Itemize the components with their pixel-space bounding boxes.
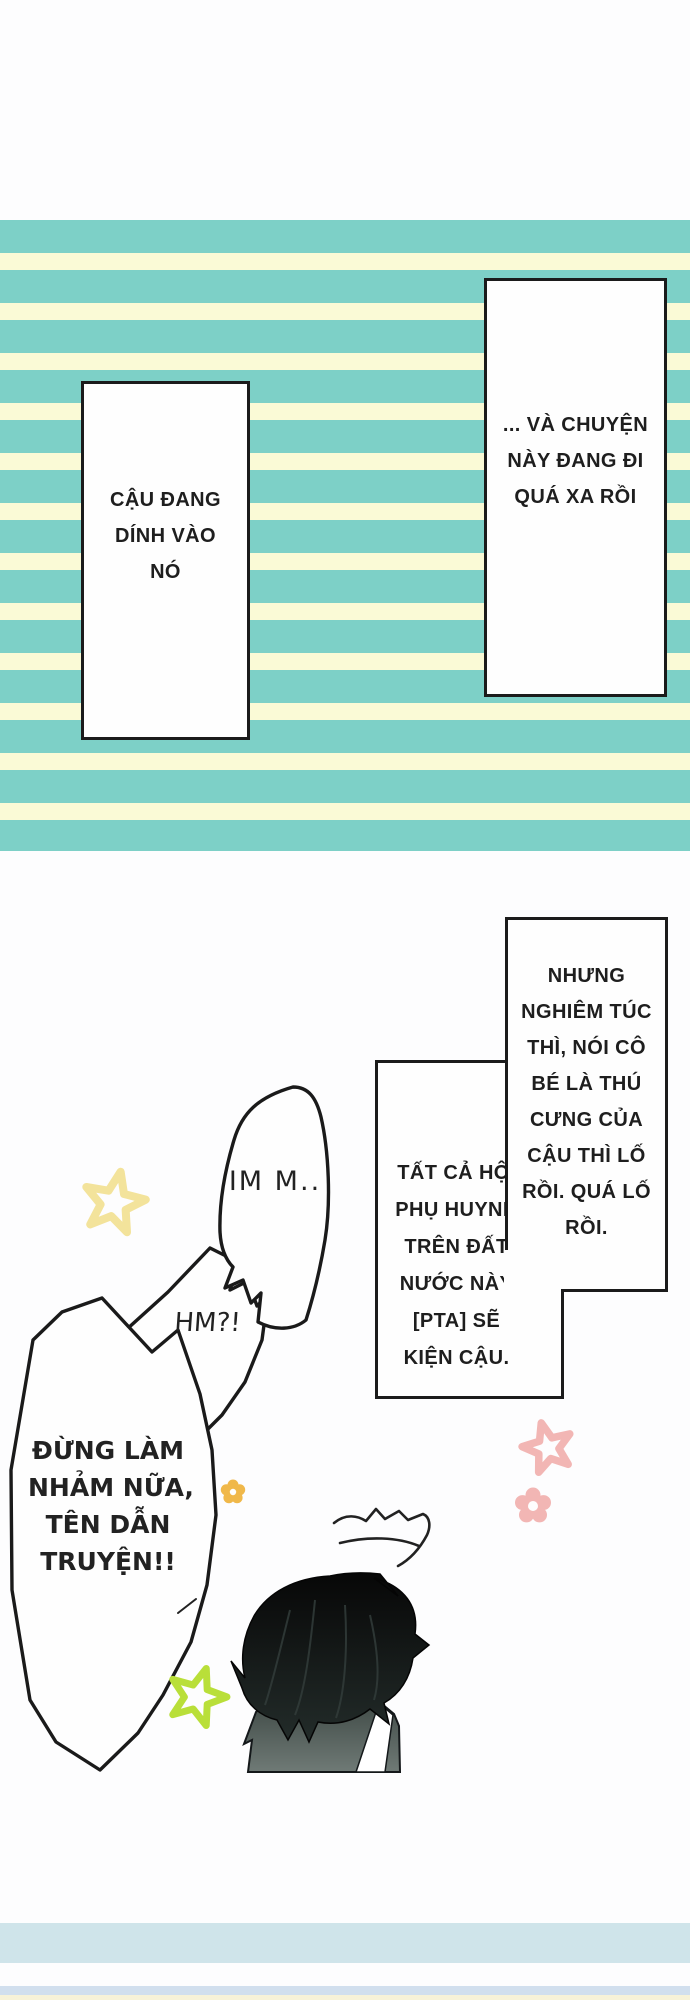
bubble-line: ĐỪNG LÀM	[28, 1432, 188, 1469]
caption-line: RỒI.	[508, 1210, 665, 1246]
character-illustration	[231, 1573, 429, 1772]
bubble-line: NHẢM NỮA,	[28, 1469, 188, 1506]
bubble-text-im: IM M..	[210, 1166, 340, 1197]
caption-line: NGHIÊM TÚC	[508, 994, 665, 1030]
caption-line: BÉ LÀ THÚ	[508, 1066, 665, 1102]
speech-bubble-hm	[96, 1248, 268, 1437]
bubble-line: TRUYỆN!!	[28, 1543, 188, 1580]
caption-line: CẬU ĐANG	[84, 482, 247, 518]
caption-line: DÍNH VÀO	[84, 518, 247, 554]
flower-pink-icon	[515, 1488, 551, 1523]
star-green-icon	[162, 1660, 233, 1729]
caption-box-top-left: CẬU ĐANG DÍNH VÀO NÓ	[81, 381, 250, 740]
caption-line: NÀY ĐANG ĐI	[487, 443, 664, 479]
caption-line: QUÁ XA RỒI	[487, 479, 664, 515]
caption-line: [PTA] SẼ	[378, 1303, 535, 1340]
caption-line: THÌ, NÓI CÔ	[508, 1030, 665, 1066]
box-overlap-mask	[505, 1288, 561, 1294]
caption-line: ... VÀ CHUYỆN	[487, 407, 664, 443]
star-yellow-icon	[79, 1165, 151, 1234]
caption-line: CẬU THÌ LỐ	[508, 1138, 665, 1174]
bubble-text-dung: ĐỪNG LÀM NHẢM NỮA, TÊN DẪN TRUYỆN!!	[28, 1432, 188, 1580]
bubble-text-hm: HM?!	[154, 1308, 261, 1338]
caption-line: KIỆN CẬU.	[378, 1340, 535, 1377]
swoosh-doodle-icon	[178, 1509, 429, 1613]
caption-line: NHƯNG	[508, 958, 665, 994]
caption-line: NÓ	[84, 554, 247, 590]
caption-line: RỒI. QUÁ LỐ	[508, 1174, 665, 1210]
bubble-line: TÊN DẪN	[28, 1506, 188, 1543]
caption-box-serious: NHƯNG NGHIÊM TÚC THÌ, NÓI CÔ BÉ LÀ THÚ C…	[505, 917, 668, 1292]
speech-bubble-im	[220, 1087, 329, 1328]
star-pink-icon	[517, 1416, 577, 1474]
caption-box-top-right: ... VÀ CHUYỆN NÀY ĐANG ĐI QUÁ XA RỒI	[484, 278, 667, 697]
flower-orange-icon	[221, 1480, 245, 1504]
box-overlap-mask	[504, 1250, 510, 1291]
footer-band	[0, 1995, 690, 2000]
comic-page: CẬU ĐANG DÍNH VÀO NÓ ... VÀ CHUYỆN NÀY Đ…	[0, 0, 690, 2000]
footer-band	[0, 1923, 690, 1963]
footer-band	[0, 1986, 690, 1995]
caption-line: CƯNG CỦA	[508, 1102, 665, 1138]
